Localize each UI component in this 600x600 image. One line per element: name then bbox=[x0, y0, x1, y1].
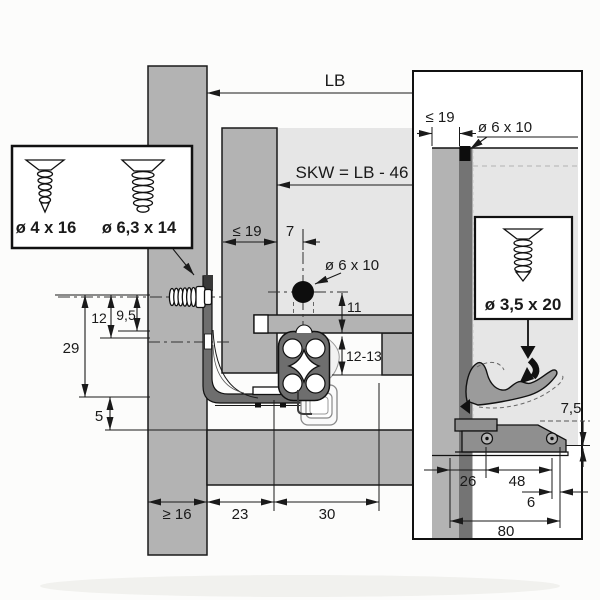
technical-drawing: LB SKW = LB - 46 ≤ 19 7 ø 6 x 10 11 12-1… bbox=[0, 0, 600, 600]
latch-screw-rear-center bbox=[550, 437, 553, 440]
dim-6-label: 6 bbox=[527, 494, 535, 511]
dim-lb-label: LB bbox=[325, 71, 346, 90]
bottom-shelf-panel bbox=[207, 430, 413, 485]
dim-95-label: 9,5 bbox=[116, 307, 136, 323]
side-detail-view: ≤ 19 ø 6 x 10 ø 3,5 x 20 bbox=[413, 71, 590, 540]
screw-35x20-label: ø 3,5 x 20 bbox=[485, 295, 562, 314]
drawer-side-block bbox=[382, 333, 413, 375]
drawer-bottom-bar-end bbox=[254, 315, 268, 333]
mounting-screw bbox=[169, 287, 211, 308]
front-panel-strip bbox=[222, 128, 277, 373]
dim-23-label: 23 bbox=[232, 506, 249, 523]
dim-panel19-label: ≤ 19 bbox=[232, 223, 261, 240]
drawing-canvas: LB SKW = LB - 46 ≤ 19 7 ø 6 x 10 11 12-1… bbox=[0, 0, 600, 600]
hole-diameter-label: ø 6 x 10 bbox=[325, 257, 379, 274]
drill-hole-marker bbox=[460, 146, 471, 161]
dim-48-label: 48 bbox=[509, 473, 526, 490]
hole-label: ø 6 x 10 bbox=[478, 119, 532, 136]
runner-foot-1 bbox=[255, 403, 261, 408]
dim-1213-label: 12-13 bbox=[346, 348, 382, 364]
drill-hole bbox=[292, 281, 314, 303]
dim-7-label: 7 bbox=[286, 223, 294, 240]
bracket-slot bbox=[205, 334, 212, 349]
dim-19-label: ≤ 19 bbox=[425, 109, 454, 126]
screw-4x16-label: ø 4 x 16 bbox=[16, 219, 77, 237]
screw-63x14-label: ø 6,3 x 14 bbox=[102, 219, 177, 237]
scan-artifact bbox=[40, 575, 560, 597]
dim-29-label: 29 bbox=[63, 340, 80, 357]
main-cross-section-view: LB SKW = LB - 46 ≤ 19 7 ø 6 x 10 11 12-1… bbox=[55, 66, 413, 555]
bearing-bottom-right bbox=[306, 374, 325, 393]
bearing-top-left bbox=[283, 339, 302, 358]
dim-12-label: 12 bbox=[91, 310, 107, 326]
dim-skw-label: SKW = LB - 46 bbox=[296, 163, 409, 182]
runner-foot-2 bbox=[280, 403, 286, 408]
cabinet-side-panel bbox=[148, 66, 207, 555]
latch-tab bbox=[455, 419, 497, 431]
dim-26-label: 26 bbox=[460, 473, 477, 490]
bearing-bottom-left bbox=[283, 374, 302, 393]
cabinet-side-edge bbox=[432, 148, 459, 538]
dim-75-label: 7,5 bbox=[561, 400, 582, 417]
dim-80-label: 80 bbox=[498, 523, 515, 540]
dim-30-label: 30 bbox=[319, 506, 336, 523]
dim-5-label: 5 bbox=[95, 408, 103, 425]
drawer-bottom-bar bbox=[254, 315, 413, 333]
latch-screw-front-center bbox=[485, 437, 488, 440]
dim-11-label: 11 bbox=[347, 299, 362, 315]
bearing-top-right bbox=[306, 339, 325, 358]
dim-16-label: ≥ 16 bbox=[162, 506, 191, 523]
